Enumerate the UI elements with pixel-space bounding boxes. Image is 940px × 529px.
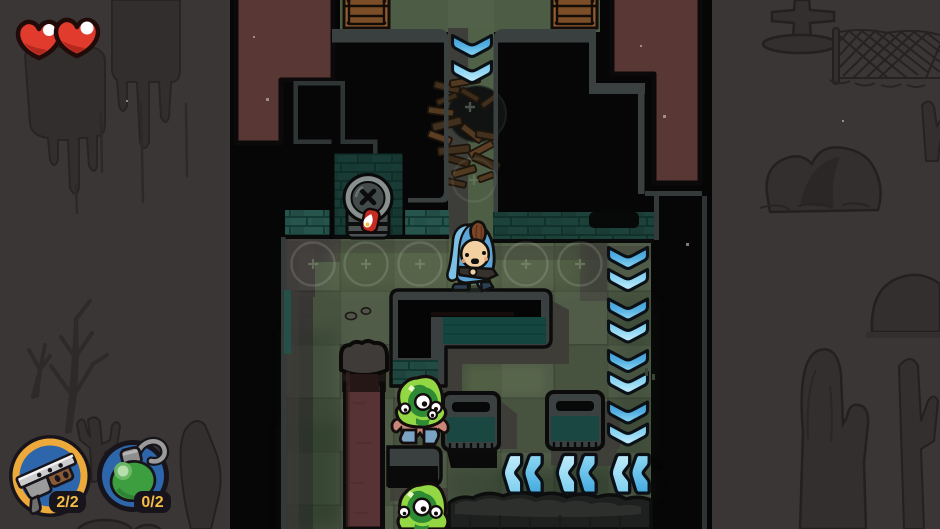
svg-text:2/2: 2/2 xyxy=(56,494,78,511)
svg-text:0/2: 0/2 xyxy=(141,494,163,511)
